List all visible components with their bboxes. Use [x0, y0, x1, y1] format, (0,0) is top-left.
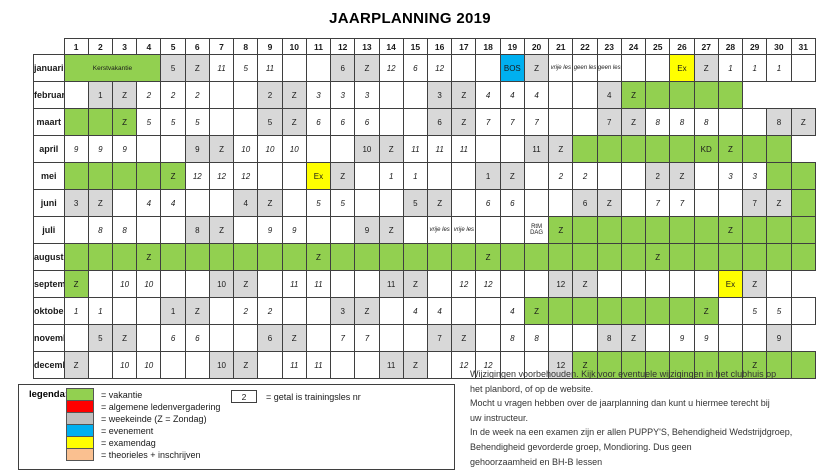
day-cell: Z [694, 55, 718, 82]
month-label: april [34, 136, 65, 163]
day-cell [670, 217, 694, 244]
day-cell [476, 217, 500, 244]
day-cell: 11 [282, 352, 306, 379]
month-label: maart [34, 109, 65, 136]
day-cell: Z [379, 136, 403, 163]
day-cell [428, 244, 452, 271]
day-cell [767, 82, 791, 109]
month-label: september [34, 271, 65, 298]
day-cell: 5 [88, 325, 112, 352]
day-cell: 8 [185, 217, 209, 244]
notes-line: Behendigheid gevorderde groep, Mondiorin… [470, 440, 818, 455]
day-cell [718, 244, 742, 271]
day-cell: Z [112, 109, 136, 136]
day-cell: 4 [234, 190, 258, 217]
notes-line: gehoorzaamheid en BH-B lessen [470, 455, 818, 470]
day-cell [597, 271, 621, 298]
day-cell [379, 325, 403, 352]
day-cell [791, 271, 815, 298]
day-cell [718, 109, 742, 136]
day-cell [670, 271, 694, 298]
day-cell [379, 298, 403, 325]
day-cell [573, 325, 597, 352]
day-cell [161, 244, 185, 271]
day-header: 1 [64, 39, 88, 55]
day-cell: 2 [185, 82, 209, 109]
day-cell [64, 325, 88, 352]
day-cell: geen les [597, 55, 621, 82]
day-header: 22 [573, 39, 597, 55]
day-cell: geen les [573, 55, 597, 82]
day-cell [743, 136, 767, 163]
day-cell: 12 [234, 163, 258, 190]
day-cell [209, 82, 233, 109]
day-cell [670, 82, 694, 109]
day-cell: 6 [500, 190, 524, 217]
day-cell: 11 [379, 352, 403, 379]
day-cell: Z [549, 136, 573, 163]
day-cell: Z [646, 244, 670, 271]
day-cell [306, 217, 330, 244]
day-cell [621, 55, 645, 82]
day-cell [597, 136, 621, 163]
day-cell [282, 298, 306, 325]
day-cell: 7 [428, 325, 452, 352]
day-cell: Z [161, 163, 185, 190]
day-header: 12 [331, 39, 355, 55]
day-cell: Z [452, 109, 476, 136]
day-cell [621, 190, 645, 217]
day-cell: 10 [137, 352, 161, 379]
day-cell [331, 217, 355, 244]
day-cell [331, 352, 355, 379]
day-cell [306, 55, 330, 82]
day-cell: 2 [161, 82, 185, 109]
day-cell: Z [403, 352, 427, 379]
day-cell: 5 [767, 298, 791, 325]
day-cell: 12 [452, 271, 476, 298]
day-cell [694, 190, 718, 217]
day-cell [88, 109, 112, 136]
day-cell [355, 163, 379, 190]
legend-item-label: = theorieles + inschrijven [101, 450, 201, 460]
notes-line: uw instructeur. [470, 411, 818, 426]
month-label: december [34, 352, 65, 379]
day-cell: 5 [306, 190, 330, 217]
day-cell: 11 [452, 136, 476, 163]
day-cell: Ex [718, 271, 742, 298]
day-cell [209, 190, 233, 217]
day-cell: 1 [476, 163, 500, 190]
day-cell [597, 163, 621, 190]
day-cell: 9 [767, 325, 791, 352]
day-cell: 6 [185, 325, 209, 352]
day-cell [137, 163, 161, 190]
day-cell [64, 163, 88, 190]
day-cell: 4 [137, 190, 161, 217]
day-cell [597, 298, 621, 325]
day-cell [234, 325, 258, 352]
day-cell [718, 190, 742, 217]
day-cell: Z [282, 325, 306, 352]
day-cell: 8 [597, 325, 621, 352]
day-cell: Z [524, 298, 548, 325]
day-cell: 7 [743, 190, 767, 217]
day-cell: 6 [306, 109, 330, 136]
day-cell [694, 271, 718, 298]
day-cell [428, 352, 452, 379]
day-cell [88, 271, 112, 298]
month-label: mei [34, 163, 65, 190]
day-cell: 11 [403, 136, 427, 163]
day-cell: 6 [428, 109, 452, 136]
day-cell: 3 [355, 82, 379, 109]
day-cell: 5 [258, 109, 282, 136]
day-cell: 9 [694, 325, 718, 352]
day-header: 25 [646, 39, 670, 55]
day-cell: vrije les [428, 217, 452, 244]
day-cell [476, 298, 500, 325]
day-cell: 10 [209, 271, 233, 298]
day-cell: 4 [428, 298, 452, 325]
day-cell [355, 352, 379, 379]
day-cell: 12 [428, 55, 452, 82]
day-cell: Z [234, 352, 258, 379]
day-cell [573, 298, 597, 325]
month-label: augustus [34, 244, 65, 271]
day-cell: 10 [137, 271, 161, 298]
day-cell [112, 190, 136, 217]
day-cell: Z [597, 190, 621, 217]
day-cell: 1 [403, 163, 427, 190]
day-cell [403, 244, 427, 271]
day-cell: 5 [137, 109, 161, 136]
day-cell [597, 217, 621, 244]
day-cell [670, 244, 694, 271]
day-cell: Z [452, 325, 476, 352]
day-cell [209, 244, 233, 271]
day-header: 24 [621, 39, 645, 55]
day-cell [379, 82, 403, 109]
day-cell: 8 [500, 325, 524, 352]
day-cell [403, 325, 427, 352]
day-cell: Z [306, 244, 330, 271]
day-cell [791, 298, 815, 325]
day-cell [646, 325, 670, 352]
day-cell [646, 298, 670, 325]
month-label: februari [34, 82, 65, 109]
day-header: 5 [161, 39, 185, 55]
day-cell [112, 244, 136, 271]
day-cell [791, 55, 815, 82]
day-header: 9 [258, 39, 282, 55]
day-cell: Z [209, 136, 233, 163]
day-cell: 10 [234, 136, 258, 163]
legend-color-swatch [66, 448, 94, 461]
day-cell: 10 [355, 136, 379, 163]
day-cell [621, 298, 645, 325]
day-cell [234, 217, 258, 244]
day-cell: 6 [331, 109, 355, 136]
day-cell [428, 163, 452, 190]
day-header: 27 [694, 39, 718, 55]
day-cell [621, 136, 645, 163]
day-cell: 5 [403, 190, 427, 217]
day-cell [234, 82, 258, 109]
day-cell: Z [621, 109, 645, 136]
day-cell [791, 217, 815, 244]
month-label: juni [34, 190, 65, 217]
day-cell: 1 [88, 82, 112, 109]
day-cell: 1 [743, 55, 767, 82]
legend-item-label: = vakantie [101, 390, 142, 400]
day-cell: 4 [524, 82, 548, 109]
day-header: 28 [718, 39, 742, 55]
day-header: 23 [597, 39, 621, 55]
day-cell [549, 298, 573, 325]
day-cell: 1 [64, 298, 88, 325]
day-cell: 11 [282, 271, 306, 298]
day-cell [88, 244, 112, 271]
day-cell [743, 244, 767, 271]
day-cell [209, 109, 233, 136]
day-cell [161, 217, 185, 244]
day-cell [331, 244, 355, 271]
day-cell: 7 [597, 109, 621, 136]
notes-line: het planbord, of op de website. [470, 382, 818, 397]
day-header: 26 [670, 39, 694, 55]
day-cell [234, 244, 258, 271]
day-cell [524, 190, 548, 217]
day-cell: 10 [112, 352, 136, 379]
day-cell [743, 109, 767, 136]
day-cell [694, 163, 718, 190]
legend-getal-sample-cell: 2 [231, 390, 257, 403]
day-cell: 5 [234, 55, 258, 82]
day-cell: 10 [209, 352, 233, 379]
day-cell: KD [694, 136, 718, 163]
day-cell: 9 [670, 325, 694, 352]
day-cell: Z [573, 271, 597, 298]
legend-item-label: = examendag [101, 438, 156, 448]
day-cell: 3 [306, 82, 330, 109]
day-cell [500, 136, 524, 163]
day-cell: 8 [646, 109, 670, 136]
day-cell: Z [282, 109, 306, 136]
day-cell: 11 [258, 55, 282, 82]
day-cell: Z [112, 325, 136, 352]
day-cell [403, 217, 427, 244]
legend-item-label: = algemene ledenvergadering [101, 402, 220, 412]
day-cell [476, 55, 500, 82]
legend-rows: = vakantie= algemene ledenvergadering= w… [66, 388, 220, 461]
day-cell: 6 [573, 190, 597, 217]
day-cell: 7 [524, 109, 548, 136]
day-cell [646, 217, 670, 244]
day-cell [573, 217, 597, 244]
legend-item-label: = evenement [101, 426, 153, 436]
day-cell [64, 109, 88, 136]
day-cell [767, 163, 791, 190]
day-cell [306, 298, 330, 325]
day-cell [767, 244, 791, 271]
day-cell: 9 [64, 136, 88, 163]
day-header: 7 [209, 39, 233, 55]
day-header: 18 [476, 39, 500, 55]
day-cell: 2 [549, 163, 573, 190]
legend-item-label: = weekeinde (Z = Zondag) [101, 414, 207, 424]
day-cell: Z [331, 163, 355, 190]
day-cell: Z [718, 136, 742, 163]
day-cell [161, 352, 185, 379]
day-cell: 8 [670, 109, 694, 136]
day-cell: Z [718, 217, 742, 244]
day-cell: 9 [282, 217, 306, 244]
day-cell [112, 163, 136, 190]
day-cell: Z [282, 82, 306, 109]
day-cell: Z [452, 82, 476, 109]
day-cell: 4 [161, 190, 185, 217]
day-cell: 8 [694, 109, 718, 136]
day-cell [549, 325, 573, 352]
day-cell: Z [185, 298, 209, 325]
day-cell: 7 [500, 109, 524, 136]
day-cell [355, 271, 379, 298]
day-cell: 11 [209, 55, 233, 82]
day-cell [621, 271, 645, 298]
day-cell [209, 325, 233, 352]
day-cell [549, 190, 573, 217]
month-label: oktober [34, 298, 65, 325]
day-cell [137, 217, 161, 244]
day-cell: 11 [524, 136, 548, 163]
day-cell: Z [791, 109, 815, 136]
day-cell [621, 244, 645, 271]
day-cell [646, 136, 670, 163]
day-cell [306, 325, 330, 352]
day-cell [428, 271, 452, 298]
day-cell: 1 [718, 55, 742, 82]
day-cell [185, 190, 209, 217]
day-header: 3 [112, 39, 136, 55]
day-cell [452, 298, 476, 325]
day-cell [282, 190, 306, 217]
day-cell: 6 [331, 55, 355, 82]
day-cell [452, 163, 476, 190]
legend-getal-label: = getal is trainingsles nr [266, 392, 361, 402]
day-cell [718, 298, 742, 325]
day-cell [767, 271, 791, 298]
day-cell [282, 163, 306, 190]
day-cell: 7 [476, 109, 500, 136]
day-cell: 4 [500, 298, 524, 325]
day-cell [743, 325, 767, 352]
day-header: 11 [306, 39, 330, 55]
day-cell: 2 [137, 82, 161, 109]
calendar-table: 1234567891011121314151617181920212223242… [33, 38, 816, 379]
notes-line: Wijzigingen voorbehouden. Kijk voor even… [470, 367, 818, 382]
day-cell: 10 [258, 136, 282, 163]
day-cell [549, 244, 573, 271]
day-cell [137, 298, 161, 325]
notes-text: Wijzigingen voorbehouden. Kijk voor even… [470, 367, 818, 469]
day-cell [64, 82, 88, 109]
day-cell: Z [694, 298, 718, 325]
day-cell: Z [743, 271, 767, 298]
day-cell [379, 190, 403, 217]
day-cell: 7 [646, 190, 670, 217]
day-cell: 7 [355, 325, 379, 352]
day-cell [694, 82, 718, 109]
day-cell [718, 82, 742, 109]
day-header: 6 [185, 39, 209, 55]
day-cell: 8 [112, 217, 136, 244]
day-cell: 2 [258, 82, 282, 109]
day-cell [791, 190, 815, 217]
day-cell [524, 271, 548, 298]
day-cell: 9 [185, 136, 209, 163]
day-header: 10 [282, 39, 306, 55]
day-cell [621, 217, 645, 244]
day-cell: Z [64, 352, 88, 379]
day-cell: Z [234, 271, 258, 298]
day-cell [524, 163, 548, 190]
day-cell [743, 217, 767, 244]
day-cell [64, 244, 88, 271]
day-cell: Z [137, 244, 161, 271]
day-cell: 3 [331, 82, 355, 109]
day-cell: 12 [379, 55, 403, 82]
month-label: januari [34, 55, 65, 82]
legend-item: = theorieles + inschrijven [66, 448, 220, 461]
day-cell [524, 244, 548, 271]
day-cell: Z [258, 190, 282, 217]
day-cell: 3 [428, 82, 452, 109]
day-header: 20 [524, 39, 548, 55]
day-cell [379, 109, 403, 136]
day-cell [137, 136, 161, 163]
day-cell [331, 271, 355, 298]
day-cell [258, 163, 282, 190]
day-cell [161, 271, 185, 298]
day-cell: Z [549, 217, 573, 244]
day-cell: 11 [306, 271, 330, 298]
day-cell: 1 [767, 55, 791, 82]
day-cell: 6 [476, 190, 500, 217]
day-header: 30 [767, 39, 791, 55]
day-cell [791, 82, 815, 109]
day-cell [185, 352, 209, 379]
day-cell: 3 [743, 163, 767, 190]
day-cell [791, 163, 815, 190]
day-cell: 2 [234, 298, 258, 325]
day-cell [670, 298, 694, 325]
day-cell [500, 244, 524, 271]
day-cell [573, 244, 597, 271]
day-cell: 5 [331, 190, 355, 217]
day-cell [88, 352, 112, 379]
day-cell: Z [355, 298, 379, 325]
day-cell [500, 271, 524, 298]
day-cell: BOS [500, 55, 524, 82]
legend-heading: legenda: [29, 389, 68, 400]
day-header: 8 [234, 39, 258, 55]
day-cell [743, 82, 767, 109]
day-cell [791, 136, 815, 163]
day-cell: 9 [88, 136, 112, 163]
day-cell [549, 82, 573, 109]
day-cell: vrije les [452, 217, 476, 244]
